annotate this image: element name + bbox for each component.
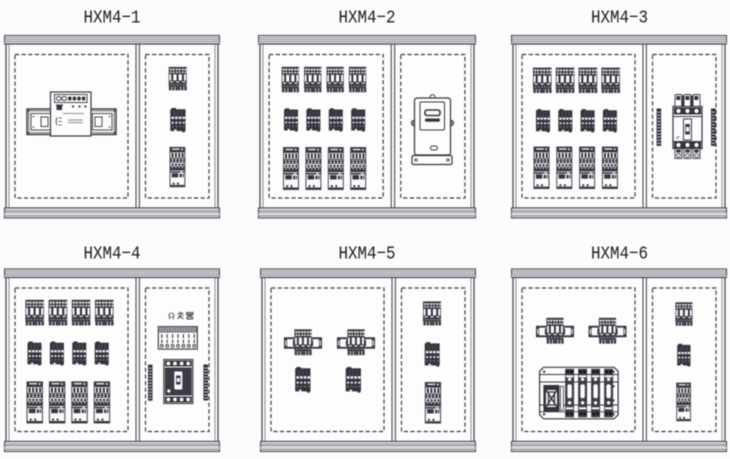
svg-text:HXM4−5: HXM4−5: [339, 244, 396, 265]
svg-text:HXM4−4: HXM4−4: [84, 244, 141, 265]
svg-text:HXM4−6: HXM4−6: [591, 244, 648, 265]
svg-text:HXM4−3: HXM4−3: [591, 8, 648, 29]
svg-text:HXM4−1: HXM4−1: [84, 8, 141, 29]
svg-text:HXM4−2: HXM4−2: [339, 8, 396, 29]
